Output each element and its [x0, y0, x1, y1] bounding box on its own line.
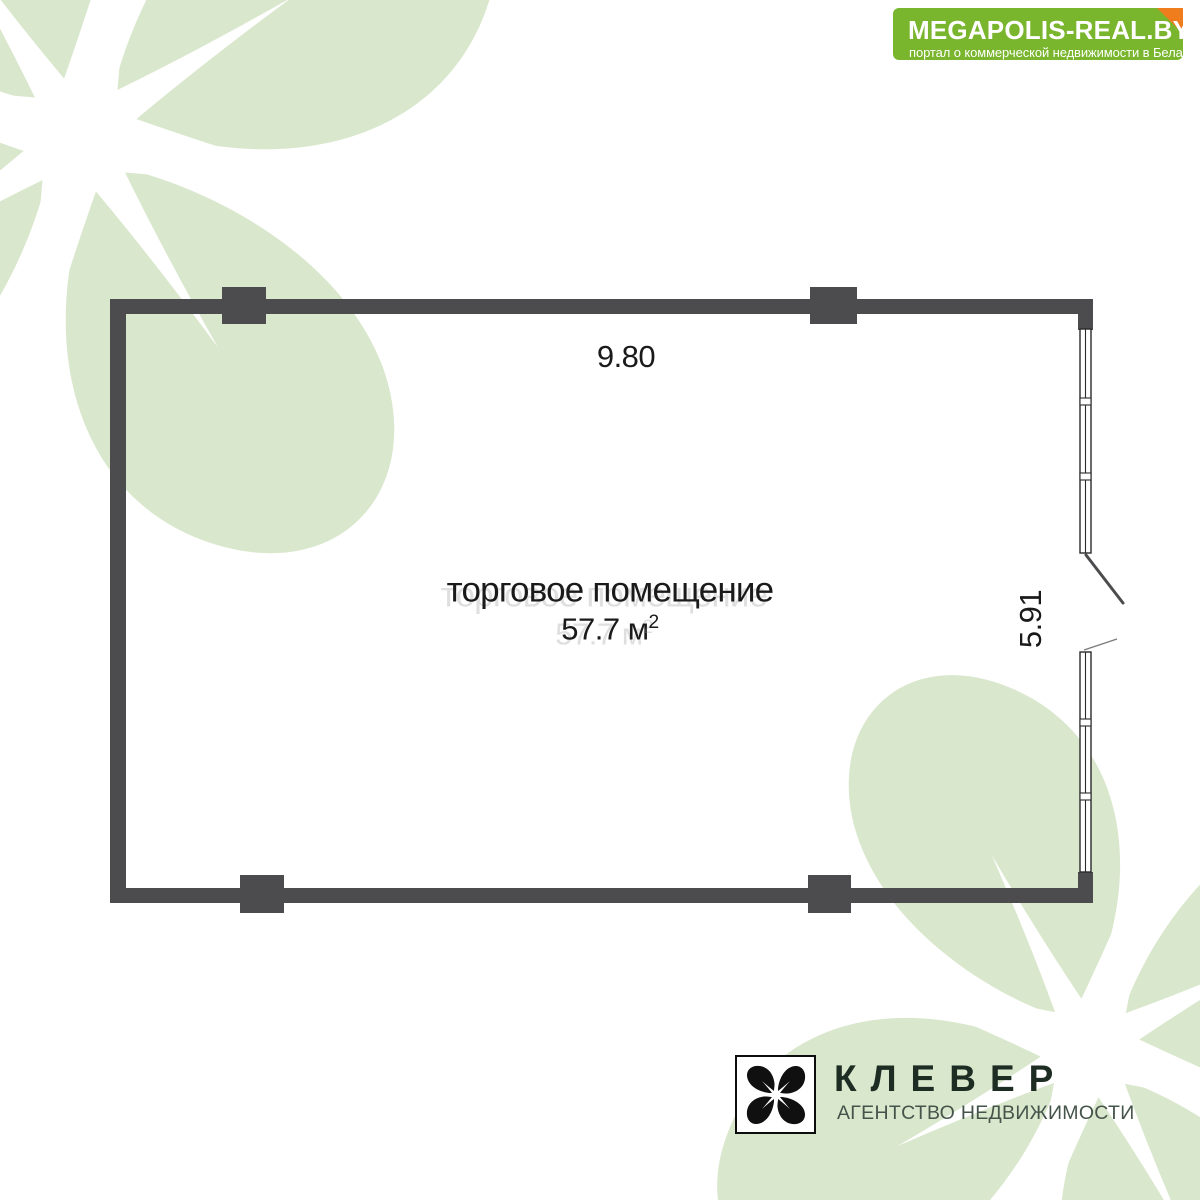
wall-corner-top-right — [1078, 299, 1093, 330]
column — [808, 875, 851, 913]
agency-tagline: АГЕНТСТВО НЕДВИЖИМОСТИ — [837, 1102, 1135, 1125]
area-exponent: 2 — [649, 612, 659, 633]
area-value: 57.7 — [561, 612, 619, 647]
room-name: торговое помещение — [447, 571, 774, 611]
wall-left — [110, 299, 126, 903]
window-upper — [1080, 329, 1091, 553]
dimension-height-label: 5.91 — [1013, 590, 1049, 648]
agency-logo — [735, 1055, 816, 1134]
agency-name: КЛЕВЕР — [834, 1058, 1067, 1100]
site-title: MEGAPOLIS-REAL.BY — [908, 15, 1190, 46]
column — [810, 287, 857, 324]
room-label-block: торговое помещение 57.7 м2 — [447, 571, 774, 648]
site-banner: MEGAPOLIS-REAL.BY портал о коммерческой … — [893, 8, 1183, 60]
area-unit: м — [628, 612, 649, 647]
column — [240, 875, 284, 913]
door-leaf — [1086, 555, 1123, 603]
room-area: 57.7 м2 — [447, 612, 774, 648]
door-swing-line — [1084, 639, 1117, 650]
door — [1084, 555, 1123, 650]
clover-icon — [744, 1063, 808, 1127]
dimension-width-label: 9.80 — [597, 339, 655, 375]
column — [222, 287, 266, 324]
site-subtitle: портал о коммерческой недвижимости в Бел… — [909, 45, 1200, 60]
page: 9.80 5.91 торговое помещение 57.7 м2 MEG… — [0, 0, 1200, 1200]
window-lower — [1080, 652, 1091, 872]
wall-corner-bottom-right — [1078, 872, 1093, 903]
